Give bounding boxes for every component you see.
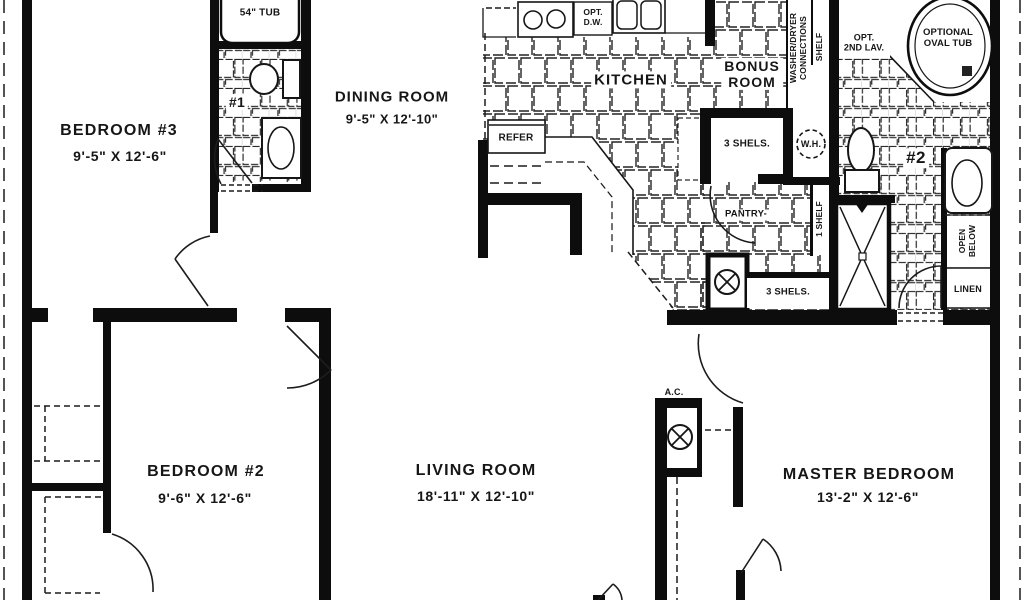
open-below-label: OPEN BELOW [958,225,978,257]
ac-unit-icon [668,425,692,449]
bath2-number: #2 [903,148,929,168]
linen-label: LINEN [954,284,982,294]
living-name: LIVING ROOM [416,462,537,480]
sink1-icon [268,127,294,169]
bonus-room-name: BONUS ROOM [721,58,783,90]
bath1-number: #1 [226,94,248,110]
optional-oval-tub-label: OPTIONAL OVAL TUB [923,28,973,50]
tub54-label: 54" TUB [240,7,281,19]
master-dims: 13'-2" X 12'-6" [817,489,919,505]
sink2-icon [952,160,982,206]
washer-dryer-label: WASHER/DRYER CONNECTIONS [789,13,809,83]
shelf-label: SHELF [815,33,825,61]
dining-name: DINING ROOM [335,88,449,105]
vent-icon [715,270,739,294]
one-shelf-label: 1 SHELF [815,201,825,237]
master-name: MASTER BEDROOM [783,466,955,484]
shelves-upper-label: 3 SHELS. [724,138,770,150]
toilet2-icon [848,128,874,172]
water-heater-label: W.H. [801,139,821,149]
toilet1-tank-icon [283,60,300,98]
refer-label: REFER [499,132,534,144]
dining-dims: 9'-5" X 12'-10" [346,113,438,128]
bedroom2-name: BEDROOM #2 [147,463,265,481]
toilet1-icon [250,64,278,94]
opt-2nd-lav-label: OPT. 2ND LAV. [844,33,884,54]
floor-plan-drawing [0,0,1024,600]
shelves-lower-label: 3 SHELS. [766,288,810,299]
opt-dw-label: OPT. D.W. [583,8,602,28]
kitchen-name: KITCHEN [591,71,671,88]
ac-label: A.C. [665,387,684,397]
bedroom2-dims: 9'-6" X 12'-6" [158,490,252,506]
floor-plan: BEDROOM #3 9'-5" X 12'-6" DINING ROOM 9'… [0,0,1024,600]
pantry-label: PANTRY- [722,210,770,221]
bedroom3-name: BEDROOM #3 [60,122,178,140]
bedroom3-dims: 9'-5" X 12'-6" [73,148,167,164]
living-dims: 18'-11" X 12'-10" [417,488,535,504]
